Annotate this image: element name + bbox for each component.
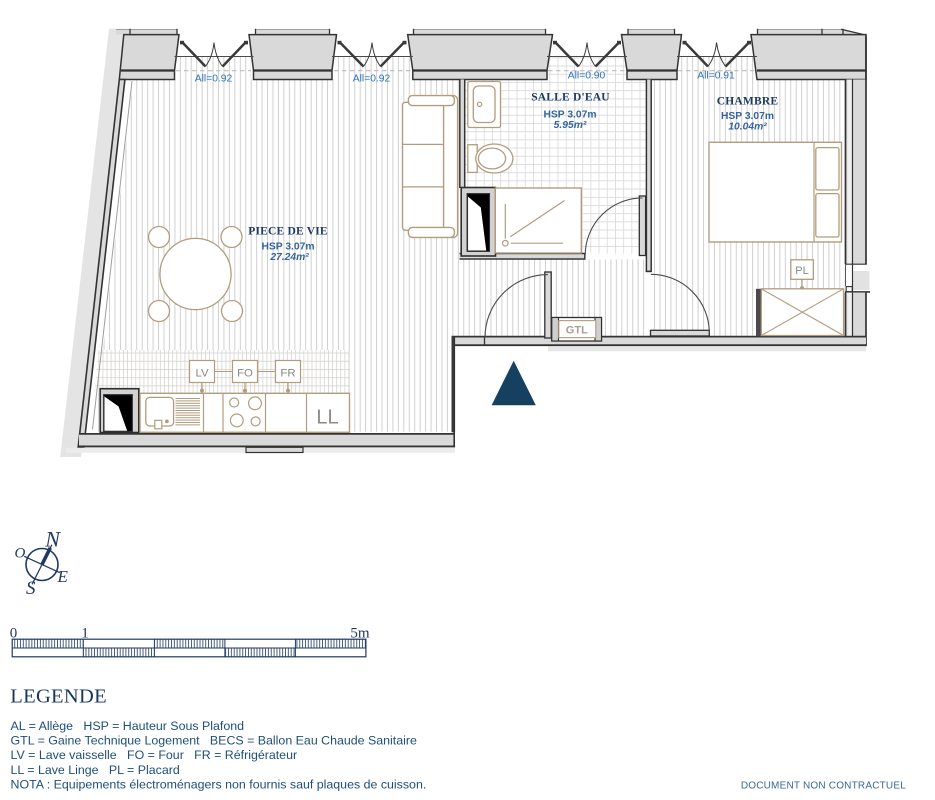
svg-text:PL: PL	[795, 265, 808, 277]
svg-text:All=0.90: All=0.90	[568, 71, 606, 82]
svg-text:LL: LL	[316, 407, 338, 429]
svg-text:CHAMBRE: CHAMBRE	[717, 96, 779, 108]
svg-text:LV: LV	[195, 368, 208, 380]
svg-text:GTL: GTL	[566, 324, 588, 336]
svg-text:27.24m²: 27.24m²	[269, 252, 309, 263]
svg-text:NOTA : Equipements électroména: NOTA : Equipements électroménagers non f…	[11, 777, 427, 791]
svg-text:O: O	[15, 546, 26, 562]
svg-text:PIECE DE VIE: PIECE DE VIE	[248, 226, 328, 238]
svg-text:All=0.92: All=0.92	[353, 74, 391, 85]
svg-text:10.04m²: 10.04m²	[728, 121, 767, 132]
svg-text:N: N	[44, 526, 61, 551]
svg-text:LEGENDE: LEGENDE	[10, 685, 107, 707]
svg-text:All=0.92: All=0.92	[195, 74, 233, 85]
svg-text:SALLE D'EAU: SALLE D'EAU	[531, 92, 610, 104]
svg-text:All=0.91: All=0.91	[697, 71, 735, 82]
svg-text:LV = Lave vaisselle FO = Fou: LV = Lave vaisselle FO = Four FR = Réfri…	[11, 748, 298, 762]
svg-text:HSP 3.07m: HSP 3.07m	[261, 241, 314, 252]
svg-text:AL = Allège HSP = Hauteur So: AL = Allège HSP = Hauteur Sous Plafond	[11, 719, 245, 733]
svg-text:GTL = Gaine Technique Logement: GTL = Gaine Technique Logement BECS = Ba…	[11, 734, 418, 748]
svg-text:FO: FO	[237, 368, 253, 380]
svg-text:S: S	[26, 578, 36, 599]
svg-text:E: E	[57, 567, 69, 586]
svg-text:LL = Lave Linge PL = Placard: LL = Lave Linge PL = Placard	[11, 763, 180, 777]
svg-text:DOCUMENT NON CONTRACTUEL: DOCUMENT NON CONTRACTUEL	[741, 780, 906, 791]
svg-text:FR: FR	[280, 368, 295, 380]
svg-text:5.95m²: 5.95m²	[554, 120, 587, 131]
